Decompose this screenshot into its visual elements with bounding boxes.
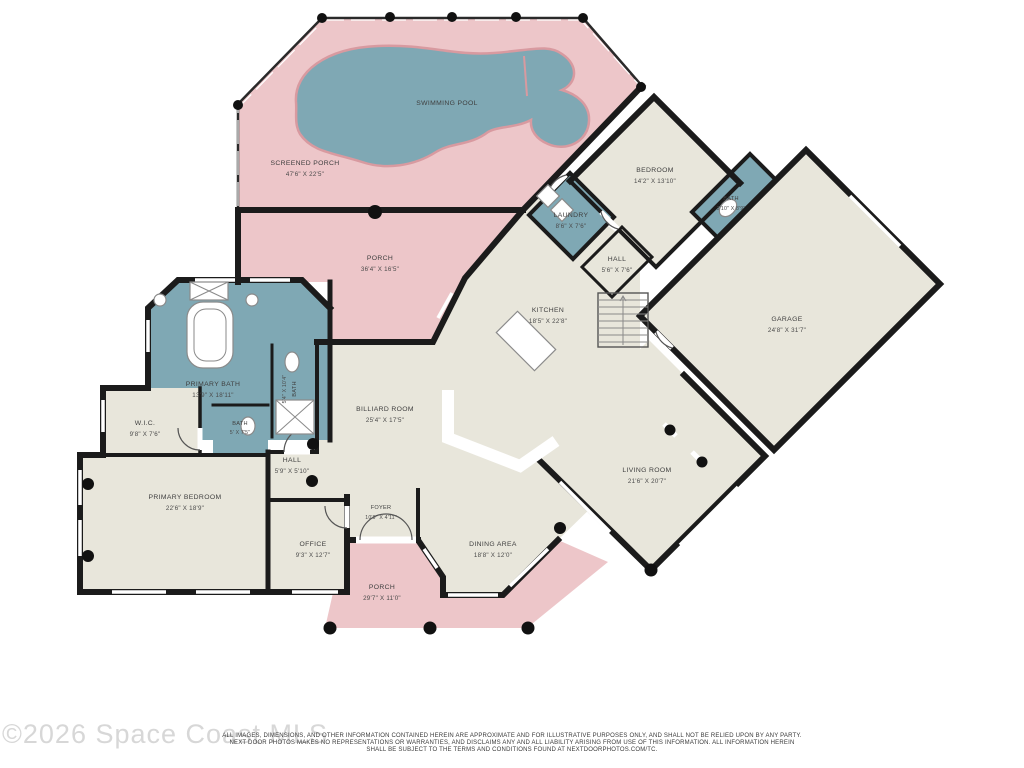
room-label-primary-bedroom: PRIMARY BEDROOM [149,494,222,501]
post [82,550,94,562]
room-dims-kitchen: 18'5" X 22'8" [529,318,567,325]
post [233,100,243,110]
sink-2 [246,294,258,306]
post [317,13,327,23]
post [307,438,319,450]
room-dims-porch-front: 29'7" X 11'0" [363,595,401,602]
room-dims-billiard: 25'4" X 17'5" [366,417,404,424]
post [424,622,437,635]
floor-plan-page: SWIMMING POOL SCREENED PORCH 47'6" X 22'… [0,0,1024,768]
room-label-porch-front: PORCH [369,584,395,591]
floor-plan-svg: SWIMMING POOL SCREENED PORCH 47'6" X 22'… [0,0,1024,768]
room-dims-bath-guest: 3'10" X 8'9" [717,206,746,212]
post [665,425,676,436]
room-label-bath-vertical: BATH [292,381,298,397]
room-label-bath-guest: BATH [723,196,739,202]
room-label-swimming-pool: SWIMMING POOL [416,100,478,107]
room-label-primary-bath: PRIMARY BATH [186,381,240,388]
room-dims-primary-bedroom: 22'6" X 18'9" [166,505,204,512]
post [522,622,535,635]
post [324,622,337,635]
room-label-foyer: FOYER [371,505,392,511]
room-dims-screened-porch: 47'6" X 22'5" [286,171,324,178]
room-dims-primary-bath: 13'9" X 18'11" [192,392,233,399]
room-dims-hall-rear: 5'6" X 7'6" [602,267,633,274]
post [697,457,708,468]
post [578,13,588,23]
disclaimer-line-3: SHALL BE SUBJECT TO THE TERMS AND CONDIT… [366,747,657,753]
post [368,205,382,219]
room-dims-hall-center: 5'9" X 5'10" [275,468,310,475]
disclaimer-line-2: NEXT DOOR PHOTOS MAKES NO REPRESENTATION… [229,740,794,746]
room-dims-bedroom: 14'2" X 13'10" [634,178,676,185]
room-label-wic: W.I.C. [135,420,156,427]
post [636,82,646,92]
room-dims-porch-rear: 36'4" X 16'5" [361,266,399,273]
room-label-garage: GARAGE [771,316,802,323]
room-label-screened-porch: SCREENED PORCH [270,160,339,167]
room-dims-garage: 24'8" X 31'7" [768,327,806,334]
room-dims-wic: 9'8" X 7'6" [130,431,161,438]
room-dims-foyer: 10'9" X 4'11" [365,515,397,521]
room-label-bath-small: BATH [232,421,248,427]
room-label-billiard: BILLIARD ROOM [356,406,414,413]
room-dims-living: 21'6" X 20'7" [628,478,666,485]
post [306,475,318,487]
room-dims-laundry: 8'6" X 7'6" [556,223,587,230]
room-dims-dining: 18'8" X 12'0" [474,552,512,559]
post [554,522,566,534]
room-label-dining: DINING AREA [469,541,517,548]
room-label-kitchen: KITCHEN [532,307,564,314]
sink-1 [154,294,166,306]
room-label-living: LIVING ROOM [622,467,671,474]
post [645,564,658,577]
disclaimer-block: ALL IMAGES, DIMENSIONS, AND OTHER INFORM… [222,733,802,753]
post [447,12,457,22]
room-label-hall-center: HALL [283,457,301,464]
room-label-laundry: LAUNDRY [554,212,589,219]
post [82,478,94,490]
room-label-office: OFFICE [299,541,326,548]
post [511,12,521,22]
post [385,12,395,22]
room-dims-office: 9'3" X 12'7" [296,552,331,559]
room-label-hall-rear: HALL [608,256,626,263]
toilet-2 [285,352,299,372]
disclaimer-line-1: ALL IMAGES, DIMENSIONS, AND OTHER INFORM… [222,733,802,739]
room-label-bedroom: BEDROOM [636,167,674,174]
room-dims-bath-vertical: 5'4" X 10'4" [282,375,288,404]
room-label-porch-rear: PORCH [367,255,393,262]
room-dims-bath-small: 5' X 7'5" [230,430,251,436]
